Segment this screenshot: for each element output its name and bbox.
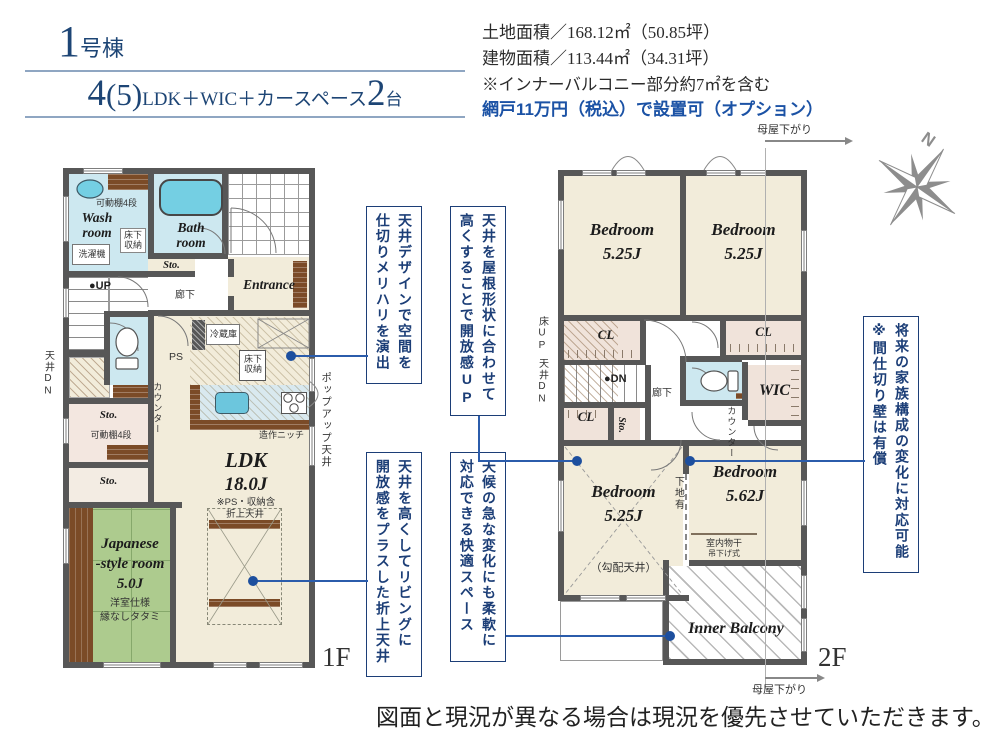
callout-future-partition: 将来の家族構成の変化に対応可能 ※間仕切り壁は有償 bbox=[863, 316, 919, 573]
inner-balcony-label: Inner Balcony bbox=[676, 620, 796, 638]
floor-1f-label: 1F bbox=[322, 642, 351, 673]
wall-backing-label: 下地有 bbox=[672, 476, 684, 524]
wash-room-label: Wash room bbox=[71, 210, 123, 240]
ceiling-down-label-1f: 天井DN bbox=[42, 350, 54, 406]
japanese-room-note-2: 縁なしタタミ bbox=[81, 612, 179, 624]
leader-dot bbox=[248, 576, 258, 586]
plan-cars-suffix: 台 bbox=[385, 90, 402, 109]
underfloor-storage-label-wash: 床下収納 bbox=[120, 228, 146, 253]
callout-coffered-ceiling: 天井を高くしてリビングに 開放感をプラスした折上天井 bbox=[366, 452, 422, 677]
leader-dot bbox=[572, 456, 582, 466]
ceiling-down-label-2f: 天井DN bbox=[536, 358, 548, 414]
unit-number: 1 bbox=[58, 17, 80, 66]
washer-label: 洗濯機 bbox=[74, 249, 110, 259]
niche-label: 造作ニッチ bbox=[259, 430, 304, 440]
bedroom-4-label: Bedroom bbox=[689, 462, 801, 481]
callout-ceiling-design: 天井デザインで空間を 仕切りメリハリを演出 bbox=[366, 206, 422, 384]
roof-arrowhead-bottom bbox=[817, 674, 825, 682]
closet-2-label: CL bbox=[726, 325, 801, 340]
unit-suffix: 号棟 bbox=[80, 36, 124, 61]
roof-boundary-line bbox=[765, 148, 766, 688]
plan-cars: 2 bbox=[367, 73, 386, 114]
leader-line bbox=[692, 460, 865, 462]
japanese-room-label-2: -style room bbox=[81, 556, 179, 573]
closet-3-label: CL bbox=[564, 410, 608, 425]
disclaimer-text: 図面と現況が異なる場合は現況を優先させていただきます。 bbox=[376, 704, 995, 730]
bedroom-2-size: 5.25J bbox=[686, 244, 801, 263]
storage-top-label: Sto. bbox=[150, 260, 193, 272]
leader-line bbox=[478, 416, 480, 462]
plan-paren: (5) bbox=[106, 77, 142, 112]
hanging-type-label: 吊下げ式 bbox=[702, 549, 746, 558]
japanese-room-note-1: 洋室仕様 bbox=[81, 598, 179, 610]
hall-label-2f: 廊下 bbox=[652, 388, 672, 400]
leader-dot bbox=[665, 631, 675, 641]
bedroom-1-size: 5.25J bbox=[564, 244, 680, 263]
underfloor-storage-label-kitchen: 床下収納 bbox=[243, 354, 263, 375]
floor-2f-label: 2F bbox=[818, 642, 847, 673]
coffered-ceiling-label: 折上天井 bbox=[221, 510, 269, 521]
bedroom-3-label: Bedroom bbox=[564, 482, 683, 501]
indoor-drying-label: 室内物干 bbox=[696, 538, 752, 548]
roof-lower-label-top: 母屋下がり bbox=[757, 124, 812, 137]
fridge-label: 冷蔵庫 bbox=[210, 329, 237, 339]
header-rule-bottom bbox=[25, 116, 465, 118]
roof-lower-label-bottom: 母屋下がり bbox=[752, 684, 807, 697]
japanese-room-label-1: Japanese bbox=[81, 536, 179, 553]
leader-line bbox=[506, 635, 668, 637]
ldk-label: LDK bbox=[191, 449, 301, 473]
floor-up-label: 床UP bbox=[536, 316, 548, 354]
callout-roof-shape-ceiling: 天井を屋根形状に合わせて 高くすることで開放感UP bbox=[450, 206, 506, 416]
storage-mid-label: Sto. bbox=[69, 409, 148, 421]
bath-room-label: Bath room bbox=[165, 220, 217, 250]
ldk-note-label: ※PS・収納含 bbox=[186, 498, 306, 509]
floorplan-sheet: 1号棟 4(5)LDK＋WIC＋カースペース2台 土地面積／168.12㎡（50… bbox=[0, 0, 1000, 750]
counter-label-1f: カウンター bbox=[152, 382, 162, 452]
storage-2f-label: Sto. bbox=[616, 410, 627, 440]
floorplan-2f: Bedroom 5.25J Bedroom 5.25J CL CL ●DN 廊下… bbox=[558, 170, 807, 668]
sloped-ceiling-label: （勾配天井） bbox=[564, 562, 683, 575]
pipe-space-label: PS bbox=[169, 351, 183, 363]
bedroom-1-label: Bedroom bbox=[564, 220, 680, 239]
shelf-mid-label: 可動棚4段 bbox=[79, 430, 143, 440]
bedroom-3-size: 5.25J bbox=[564, 506, 683, 525]
bedroom-4-size: 5.62J bbox=[689, 486, 801, 505]
japanese-room-size-label: 5.0J bbox=[81, 576, 179, 593]
storage-low-label: Sto. bbox=[69, 475, 148, 487]
closet-1-label: CL bbox=[578, 328, 634, 343]
leader-dot bbox=[286, 351, 296, 361]
leader-line bbox=[478, 460, 577, 462]
hall-label-1f: 廊下 bbox=[175, 290, 195, 302]
unit-title: 1号棟 bbox=[58, 16, 124, 67]
plan-num: 4 bbox=[88, 73, 107, 114]
roof-arrow-top bbox=[765, 140, 847, 142]
land-area: 土地面積／168.12㎡（50.85坪） bbox=[482, 20, 823, 46]
floorplan-1f: 可動棚4段 Wash room 床下収納 洗濯機 Bath room Sto. … bbox=[63, 168, 315, 668]
leader-dot bbox=[685, 456, 695, 466]
shelf-top-label: 可動棚4段 bbox=[96, 198, 144, 208]
callout-weather-space: 天候の急な変化にも柔軟に 対応できる快適スペース bbox=[450, 452, 506, 662]
plan-rooms: LDK＋WIC＋カースペース bbox=[142, 89, 367, 110]
building-area: 建物面積／113.44㎡（34.31坪） bbox=[482, 46, 823, 72]
entrance-label: Entrance bbox=[231, 277, 307, 292]
stairs-up-label: ●UP bbox=[89, 280, 111, 293]
stairs-dn-label: ●DN bbox=[604, 373, 627, 386]
wic-label: WIC bbox=[748, 382, 801, 400]
plan-summary: 4(5)LDK＋WIC＋カースペース2台 bbox=[25, 72, 465, 115]
area-info: 土地面積／168.12㎡（50.85坪） 建物面積／113.44㎡（34.31坪… bbox=[482, 20, 823, 123]
screen-option-note: 網戸11万円（税込）で設置可（オプション） bbox=[482, 97, 823, 123]
leader-line bbox=[253, 580, 368, 582]
compass-rose-icon bbox=[865, 135, 970, 240]
roof-arrowhead-top bbox=[845, 137, 853, 145]
popup-ceiling-label: ポップアップ天井 bbox=[320, 372, 332, 472]
balcony-note: ※インナーバルコニー部分約7㎡を含む bbox=[482, 72, 823, 97]
bedroom-2-label: Bedroom bbox=[686, 220, 801, 239]
leader-line bbox=[291, 355, 368, 357]
ldk-size-label: 18.0J bbox=[191, 474, 301, 495]
counter-label-2f: カウンター bbox=[726, 406, 736, 466]
roof-arrow-bottom bbox=[765, 677, 819, 679]
